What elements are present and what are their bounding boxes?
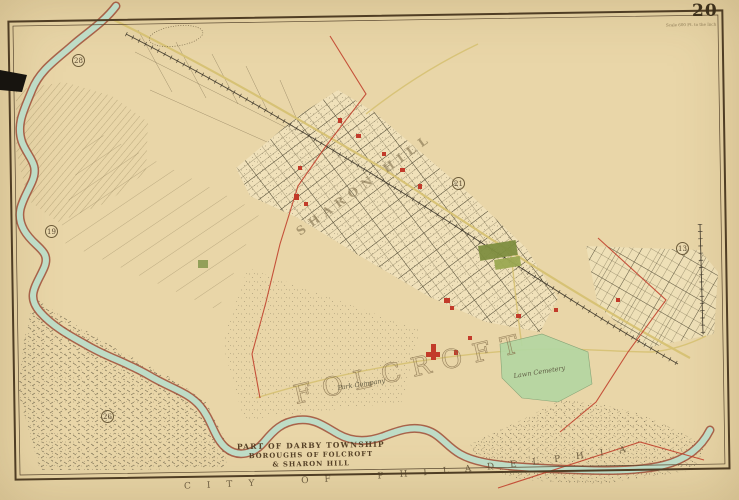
scale-note: Scale 600 Ft. to the Inch <box>666 22 716 28</box>
grove-outline <box>148 22 204 49</box>
plate-ref-circle: 19 <box>45 225 58 238</box>
plate-ref-circle: 21 <box>452 177 465 190</box>
atlas-map-page: SHARON HILL FOLCROFT Lawn Cemetery Park … <box>0 0 739 500</box>
plate-ref-circle: 28 <box>72 54 85 67</box>
plate-number: 20 <box>692 1 718 21</box>
binder-tab <box>0 70 27 92</box>
map-title-block: PART OF DARBY TOWNSHIP BOROUGHS OF FOLCR… <box>236 440 386 470</box>
plate-ref-circle: 13 <box>676 242 689 255</box>
farm-parcels <box>58 128 260 310</box>
street-grid-east <box>586 246 718 348</box>
map-artwork: SHARON HILL FOLCROFT Lawn Cemetery Park … <box>0 0 739 500</box>
plate-ref-circle: 26 <box>101 410 114 423</box>
